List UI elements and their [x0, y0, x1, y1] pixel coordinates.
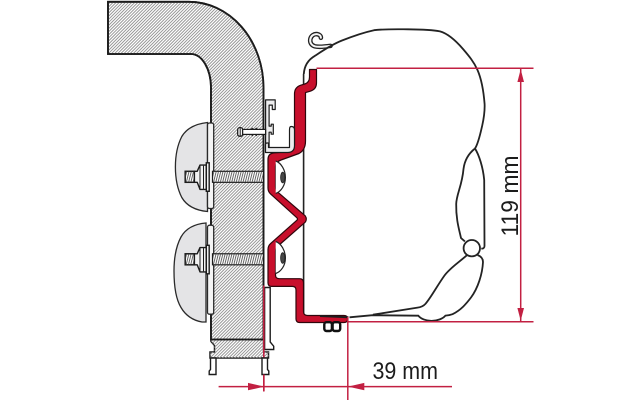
- svg-text:39 mm: 39 mm: [373, 359, 439, 385]
- svg-text:119 mm: 119 mm: [498, 156, 524, 237]
